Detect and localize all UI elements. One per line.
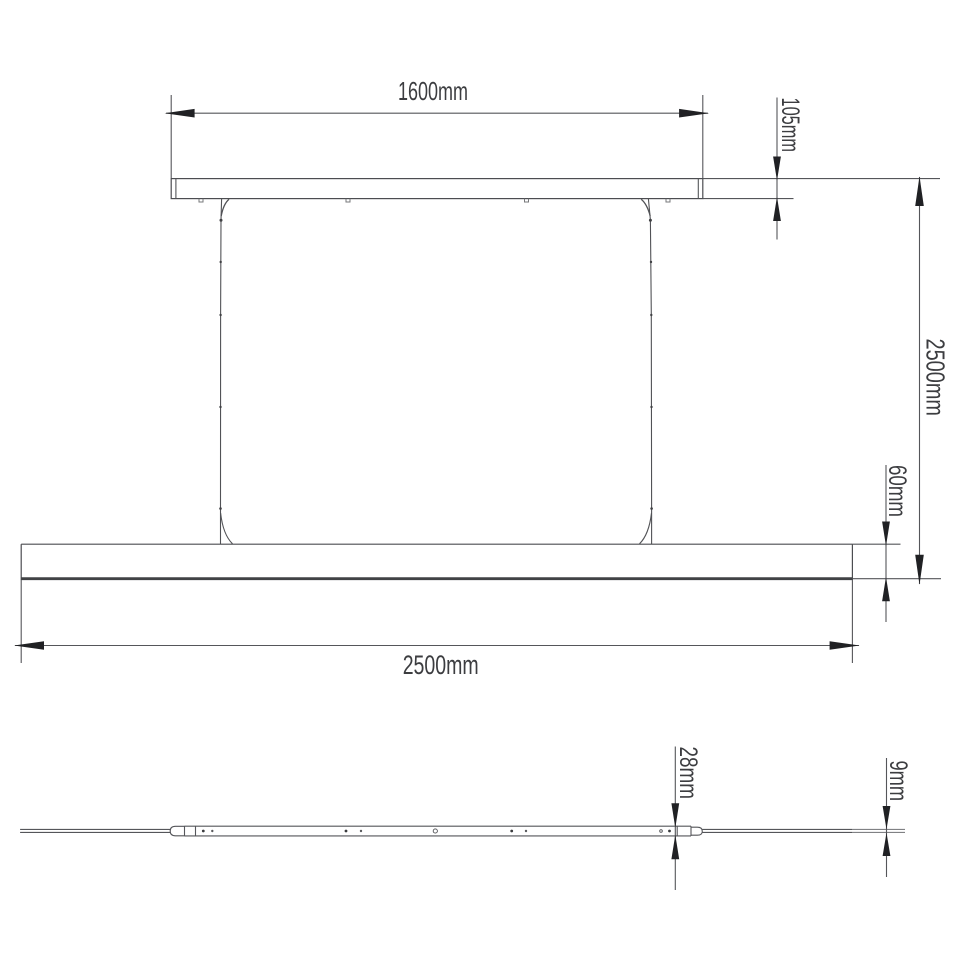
svg-text:2500mm: 2500mm <box>403 650 479 680</box>
svg-text:2500mm: 2500mm <box>921 339 951 417</box>
svg-text:1600mm: 1600mm <box>398 76 468 106</box>
svg-text:60mm: 60mm <box>883 465 911 517</box>
svg-text:9mm: 9mm <box>884 761 912 802</box>
svg-text:28mm: 28mm <box>674 747 702 800</box>
svg-text:105mm: 105mm <box>776 98 804 153</box>
